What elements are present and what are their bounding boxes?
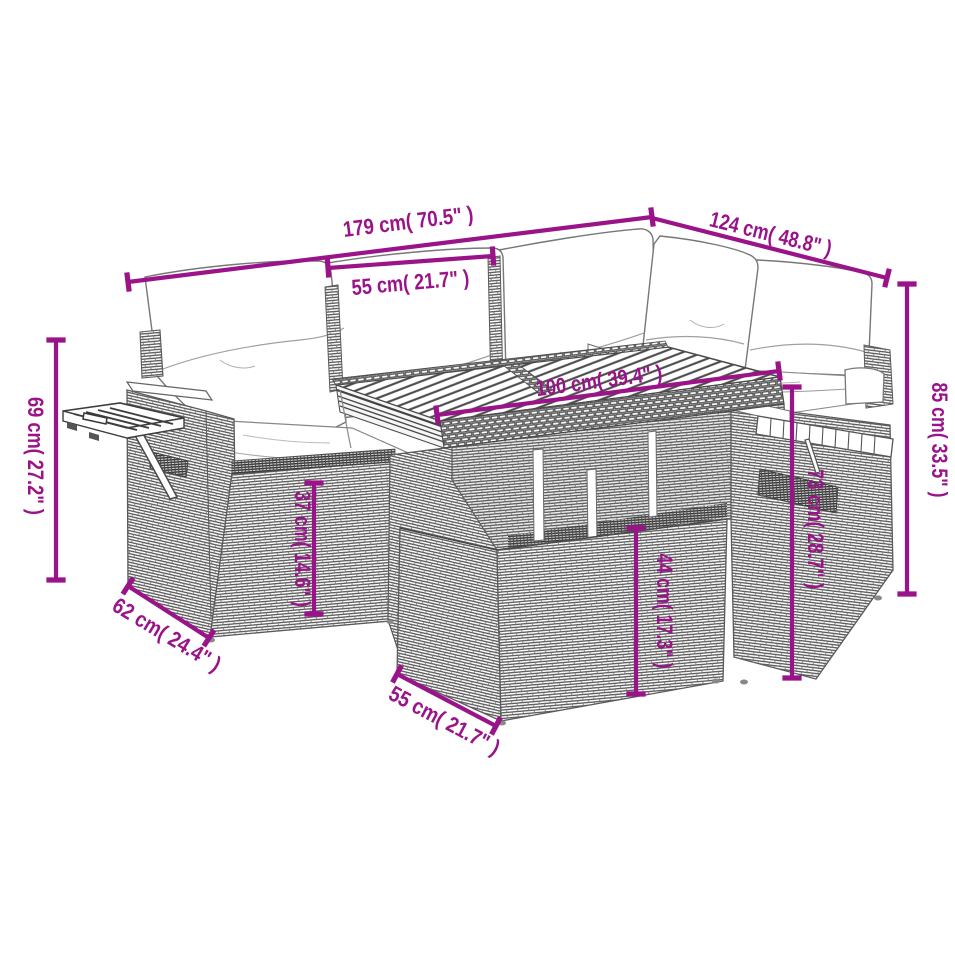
svg-text:37 cm( 14.6" ): 37 cm( 14.6" ) <box>290 491 315 607</box>
svg-text:73 cm( 28.7" ): 73 cm( 28.7" ) <box>803 469 828 589</box>
svg-text:85 cm( 33.5" ): 85 cm( 33.5" ) <box>927 383 952 498</box>
svg-text:44 cm( 17.3" ): 44 cm( 17.3" ) <box>652 554 677 669</box>
svg-text:69 cm( 27.2" ): 69 cm( 27.2" ) <box>23 397 48 515</box>
